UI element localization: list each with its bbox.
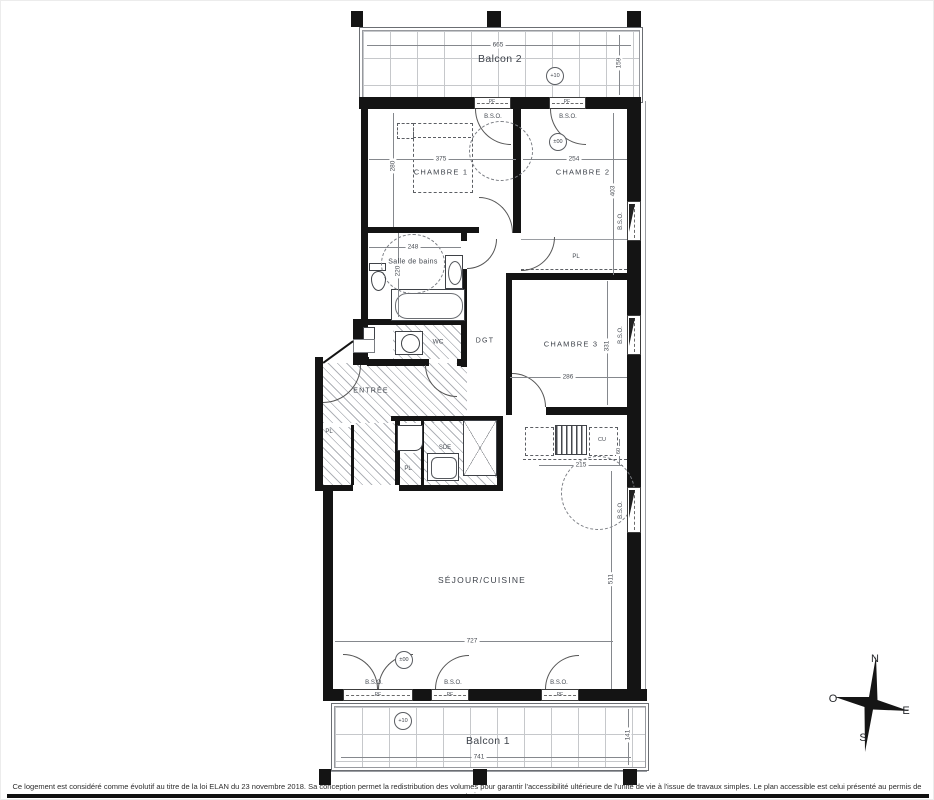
dimension-label: 511 — [607, 572, 614, 586]
room-label-balcon2: Balcon 2 — [478, 53, 522, 65]
wall — [367, 359, 429, 366]
wall — [469, 689, 541, 701]
wall — [361, 229, 368, 321]
compass-north: N — [871, 653, 879, 665]
nightstand-outline — [397, 123, 414, 139]
pf-label: PF — [447, 692, 453, 698]
pl-label: PL — [325, 429, 332, 435]
toilet-wc-bowl — [401, 334, 420, 353]
compass-south: S — [859, 732, 866, 744]
wall — [627, 355, 641, 487]
pf-label: PF — [557, 692, 563, 698]
dimension-label: 159 — [615, 56, 622, 71]
wall — [315, 357, 323, 487]
room-label-sde: SDE — [439, 445, 451, 451]
closet-left-hatch — [323, 427, 353, 485]
wall — [351, 425, 354, 485]
corridor-hatch — [353, 423, 399, 485]
dimension-label: 215 — [574, 461, 589, 468]
turning-circle-sejour — [561, 456, 635, 530]
wall — [413, 689, 431, 701]
blind-triangle-icon — [629, 204, 635, 232]
shower — [463, 420, 497, 476]
bathtub-inner — [395, 293, 463, 319]
floor-plan: Balcon 2 CHAMBRE 1 CHAMBRE 2 Salle de ba… — [0, 0, 934, 800]
pf-label: PF — [564, 99, 570, 105]
wall — [627, 97, 641, 201]
dimension-label: 141 — [624, 728, 631, 743]
wall — [399, 485, 503, 491]
stove-outline — [555, 425, 587, 455]
dimension-label: 286 — [561, 373, 576, 380]
blind-triangle-icon — [629, 318, 635, 346]
door-arc-chambre1 — [479, 197, 513, 233]
facade-line — [645, 101, 646, 689]
pillar — [351, 11, 363, 27]
wall — [506, 273, 635, 280]
wall — [497, 416, 503, 491]
pl-label: PL — [404, 466, 411, 472]
pf-label: PF — [375, 692, 381, 698]
balcony-1-ground-line — [331, 771, 647, 772]
dimension-label: 727 — [465, 637, 480, 644]
pl-label: PL — [572, 254, 579, 260]
level-marker-balcon2: +10 — [546, 67, 564, 85]
bso-label: B.S.O. — [365, 680, 383, 686]
door-arc-chambre3 — [512, 373, 546, 407]
wall — [457, 359, 467, 366]
bso-label: B.S.O. — [618, 212, 624, 230]
dimension-label: 331 — [603, 339, 610, 354]
level-marker-chambre2: ±00 — [549, 133, 567, 151]
door-arc-chambre2 — [521, 237, 555, 271]
room-label-dgt: DGT — [476, 338, 494, 345]
dimension-label: 403 — [609, 184, 616, 199]
wall — [506, 407, 512, 415]
dimension-label: 60 — [616, 446, 622, 456]
dimension-label: 375 — [434, 155, 449, 162]
wall — [323, 487, 333, 701]
pillar — [487, 11, 501, 27]
dimension-label: 248 — [406, 243, 421, 250]
room-label-balcon1: Balcon 1 — [466, 735, 510, 747]
room-label-wc: WC — [433, 339, 444, 346]
bso-label: B.S.O. — [484, 114, 502, 120]
footer-divider — [7, 794, 929, 798]
door-arc-sdb — [467, 239, 497, 269]
bso-label: B.S.O. — [618, 501, 624, 519]
compass-west: O — [829, 693, 838, 705]
wall — [546, 407, 635, 415]
dimension-label: 280 — [389, 159, 396, 174]
level-marker-sejour: ±00 — [395, 651, 413, 669]
room-label-sejour: SÉJOUR/CUISINE — [438, 575, 526, 585]
pf-label: PF — [489, 99, 495, 105]
bso-label: B.S.O. — [550, 680, 568, 686]
doormat — [353, 339, 375, 353]
room-label-chambre1: CHAMBRE 1 — [414, 168, 469, 177]
room-label-chambre3: CHAMBRE 3 — [544, 340, 599, 349]
level-marker-balcon1: +10 — [394, 712, 412, 730]
room-label-cu: CU — [598, 437, 606, 443]
dimension-label: 741 — [472, 753, 487, 760]
room-label-sdb: Salle de bains — [388, 259, 438, 266]
bso-label: B.S.O. — [618, 326, 624, 344]
entry-door-leaf — [323, 340, 354, 363]
bso-label: B.S.O. — [559, 114, 577, 120]
dimension-label: 665 — [491, 41, 506, 48]
compass-east: E — [902, 705, 909, 717]
washing-machine — [397, 425, 423, 451]
wall — [361, 108, 368, 229]
room-label-chambre2: CHAMBRE 2 — [556, 168, 611, 177]
wall — [315, 485, 353, 491]
wall — [359, 97, 474, 109]
wall — [627, 533, 641, 701]
toilet-bowl-sdb — [371, 271, 386, 291]
dimension-label: 254 — [567, 155, 582, 162]
pillar — [627, 11, 641, 27]
wall — [579, 689, 647, 701]
room-label-entree: ENTRÉE — [353, 388, 389, 395]
fridge-outline — [525, 427, 554, 456]
bso-label: B.S.O. — [444, 680, 462, 686]
blind-triangle-icon — [629, 490, 635, 518]
washbasin-sdb-bowl — [448, 261, 462, 285]
washbasin-sde-bowl — [431, 457, 457, 479]
bed-pillow-line — [413, 137, 471, 138]
dimension-label: 220 — [394, 264, 401, 279]
closet-front-line — [521, 269, 627, 270]
